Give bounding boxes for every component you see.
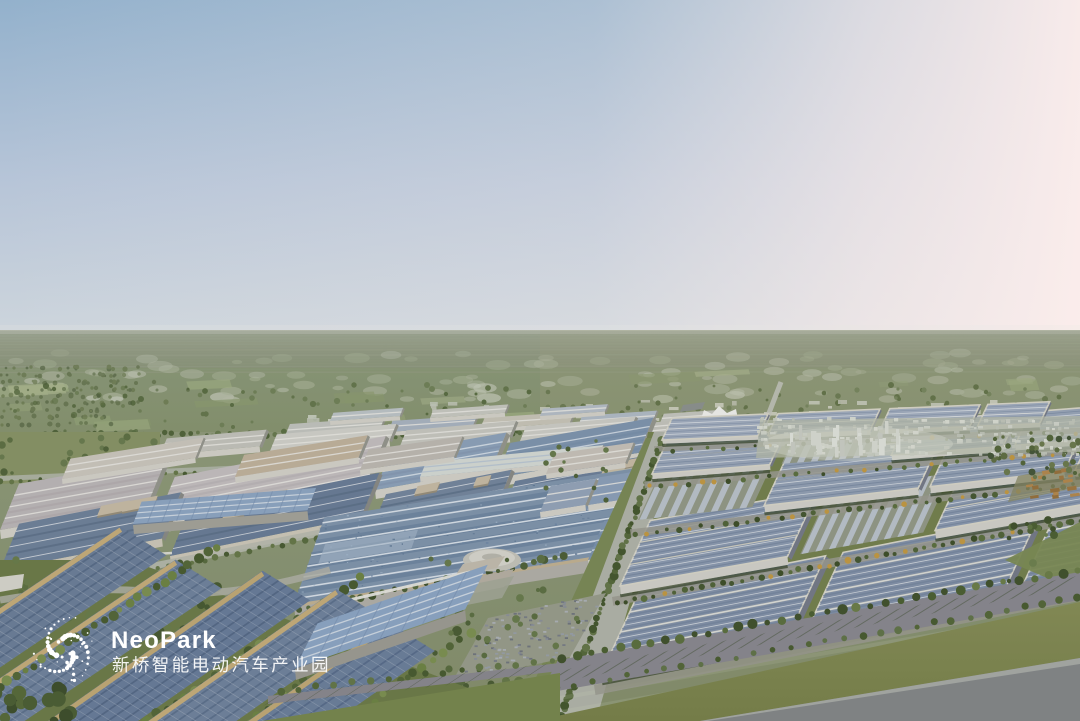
svg-text:NeoPark: NeoPark (111, 627, 217, 654)
svg-text:新桥智能电动汽车产业园: 新桥智能电动汽车产业园 (112, 655, 331, 675)
